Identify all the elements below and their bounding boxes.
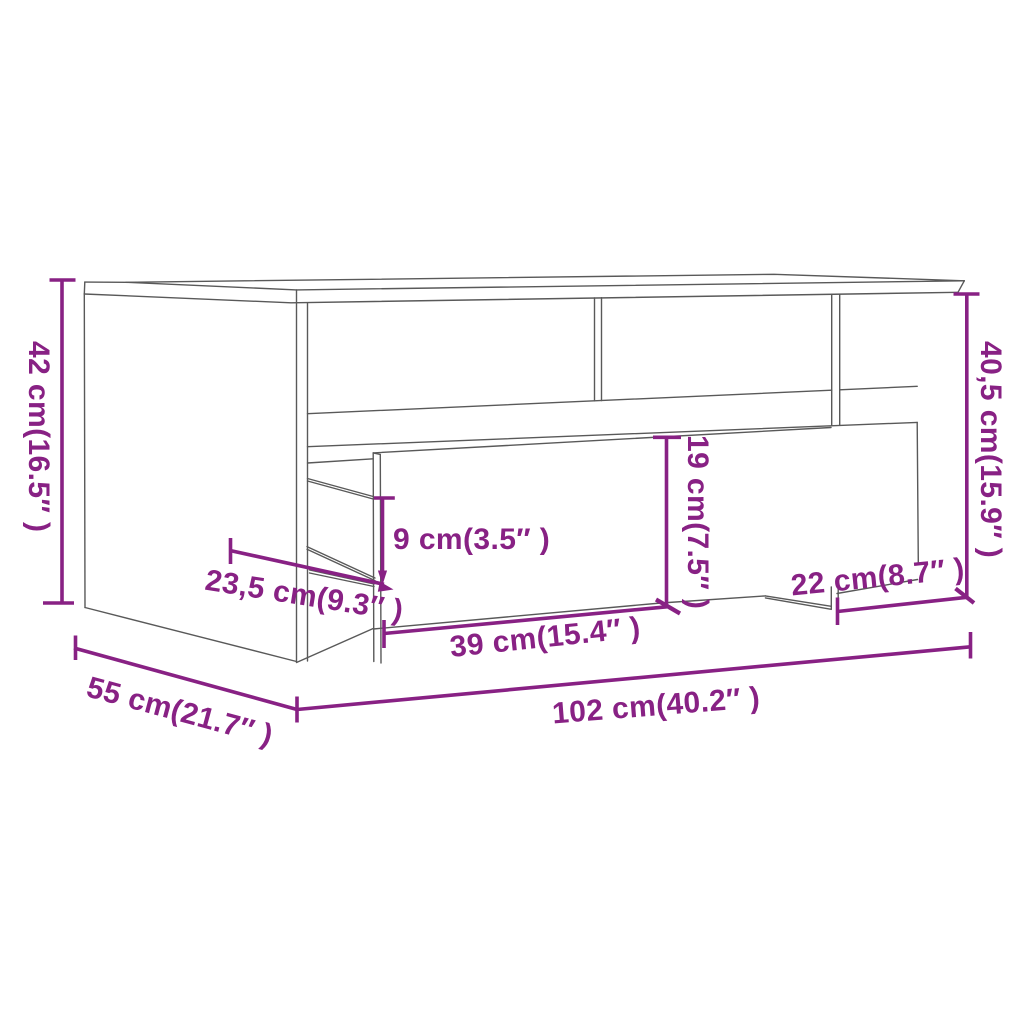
svg-text:9 cm(3.5″ ): 9 cm(3.5″ ) bbox=[393, 523, 550, 556]
svg-text:42 cm(16.5″ ): 42 cm(16.5″ ) bbox=[22, 341, 55, 532]
svg-text:19 cm(7.5″ ): 19 cm(7.5″ ) bbox=[681, 435, 714, 609]
svg-text:40,5 cm(15.9″ ): 40,5 cm(15.9″ ) bbox=[974, 341, 1007, 558]
